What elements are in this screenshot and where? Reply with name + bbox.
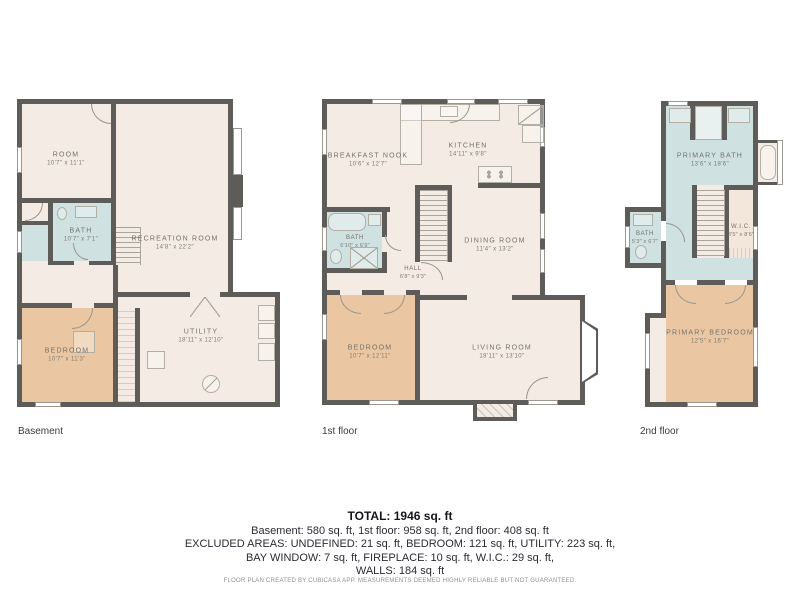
door-leaf [205, 297, 220, 317]
room-name: BEDROOM [45, 348, 90, 355]
stairwell-icon [118, 311, 135, 402]
furniture-icon [147, 351, 165, 369]
stairs-icon [420, 190, 448, 262]
first-floor-caption: 1st floor [322, 426, 358, 437]
window [35, 402, 61, 407]
basement-shower-closet [22, 225, 48, 261]
second-floor-plan: PRIMARY BATH 13'6" x 18'6" BATH 5'3" x 6… [625, 101, 785, 407]
wall [420, 295, 467, 300]
chimney [228, 175, 243, 207]
total-area: TOTAL: 1946 sq. ft [0, 509, 800, 523]
room-name: BATH [632, 231, 658, 237]
wall [722, 101, 727, 140]
double-door [190, 297, 220, 317]
room-label-primary-bath: PRIMARY BATH 13'6" x 18'6" [677, 153, 743, 168]
room-dims: 5'3" x 6'7" [632, 239, 658, 245]
window [17, 147, 22, 173]
floor-areas: Basement: 580 sq. ft, 1st floor: 958 sq.… [0, 525, 800, 538]
window [668, 101, 688, 106]
room-label-basement-bath: BATH 10'7" x 7'1" [64, 228, 98, 243]
wall [661, 241, 666, 263]
wall [540, 295, 585, 300]
room-label-wic: W.I.C. 3'5" x 8'6" [728, 224, 754, 238]
water-heater-icon [202, 375, 220, 393]
stove-burners [481, 169, 509, 180]
room-name: DINING ROOM [464, 238, 525, 245]
appliance-icon [258, 323, 275, 339]
shower-icon [350, 247, 378, 269]
disclaimer-text: FLOOR PLAN CREATED BY CUBICASA APP. MEAS… [0, 578, 800, 584]
window [369, 400, 399, 405]
window [17, 339, 22, 365]
toilet-icon [57, 207, 67, 220]
bathtub-icon [760, 145, 776, 180]
room-dims: 12'5" x 16'7" [666, 339, 754, 345]
door-leaf [190, 297, 205, 317]
appliance-icon [258, 343, 275, 361]
window [645, 333, 650, 369]
wall [362, 290, 384, 295]
window [687, 402, 717, 407]
room-label-living-room: LIVING ROOM 18'11" x 13'10" [472, 345, 532, 360]
window-bump [233, 207, 242, 240]
room-label-primary-bedroom: PRIMARY BEDROOM 12'5" x 16'7" [666, 330, 754, 345]
wall [661, 212, 666, 221]
room-dims: 10'7" x 11'3" [45, 357, 90, 363]
toilet-icon [635, 245, 647, 259]
appliance-icon [258, 305, 275, 321]
walls-area: WALLS: 184 sq. ft [0, 565, 800, 578]
room-label-basement-bedroom: BEDROOM 10'7" x 11'3" [45, 348, 90, 363]
room-name: RECREATION ROOM [131, 236, 218, 243]
room-label-kitchen: KITCHEN 14'11" x 9'8" [448, 143, 487, 158]
wall [415, 290, 420, 405]
wall [327, 290, 340, 295]
wall [382, 212, 387, 237]
wall [220, 292, 280, 297]
excluded-areas-1: EXCLUDED AREAS: UNDEFINED: 21 sq. ft, BE… [0, 538, 800, 551]
room-name: BATH [64, 228, 98, 235]
wall [666, 280, 675, 285]
wall [478, 183, 545, 188]
wall [94, 303, 113, 308]
wall [625, 207, 666, 212]
room-label-first-bedroom: BEDROOM 10'7" x 12'11" [348, 345, 393, 360]
window [322, 227, 327, 251]
room-name: W.I.C. [728, 224, 754, 230]
room-dims: 18'11" x 12'10" [178, 338, 223, 344]
room-label-dining-room: DINING ROOM 11'4" x 13'2" [464, 238, 525, 253]
window [498, 99, 528, 104]
floorplan-page: ROOM 10'7" x 11'1" RECREATION ROOM 14'8"… [0, 0, 800, 600]
room-name: KITCHEN [448, 143, 487, 150]
window [322, 314, 327, 340]
basement-caption: Basement [18, 426, 63, 437]
wall [113, 292, 190, 297]
bedroom-nook-area [650, 318, 666, 402]
shower-icon [695, 106, 722, 140]
wall [661, 263, 666, 318]
stairs-icon [697, 190, 725, 256]
window [322, 129, 327, 155]
room-dims: 10'6" x 12'7" [328, 162, 408, 168]
wall [22, 303, 72, 308]
room-label-recreation-room: RECREATION ROOM 14'8" x 22'2" [131, 236, 218, 251]
excluded-areas-2: BAY WINDOW: 7 sq. ft, FIREPLACE: 10 sq. … [0, 552, 800, 565]
room-name: BEDROOM [348, 345, 393, 352]
stove-icon [478, 166, 512, 183]
window [540, 249, 545, 273]
room-dims: 11'4" x 13'2" [464, 247, 525, 253]
wall [275, 292, 280, 407]
room-label-basement-room: ROOM 10'7" x 11'1" [47, 152, 85, 167]
wall [625, 263, 666, 268]
bay-window-glass [582, 321, 596, 382]
room-name: PRIMARY BEDROOM [666, 330, 754, 337]
window-bump [233, 128, 242, 175]
closet-rail-icon [729, 248, 753, 258]
room-dims: 13'6" x 18'6" [677, 162, 743, 168]
second-floor-caption: 2nd floor [640, 426, 679, 437]
corner-counter [518, 105, 544, 125]
wall [17, 99, 233, 104]
kitchen-counter [522, 125, 544, 143]
bathtub-icon [328, 213, 366, 231]
room-dims: 14'11" x 9'8" [448, 152, 487, 158]
wall [724, 185, 753, 190]
window [528, 400, 558, 405]
sink-icon [669, 108, 691, 123]
room-dims: 10'7" x 7'1" [64, 237, 98, 243]
wall [89, 261, 116, 265]
wall [697, 280, 725, 285]
room-name: ROOM [47, 152, 85, 159]
room-label-breakfast-nook: BREAKFAST NOOK 10'6" x 12'7" [328, 153, 408, 168]
room-name: BATH [340, 235, 370, 241]
room-label-first-bath: BATH 6'10" x 6'9" [340, 235, 370, 249]
wall [747, 280, 753, 285]
room-dims: 10'7" x 12'11" [348, 354, 393, 360]
room-name: BREAKFAST NOOK [328, 153, 408, 160]
room-name: PRIMARY BATH [677, 153, 743, 160]
toilet-icon [330, 249, 342, 264]
window [777, 140, 783, 185]
room-name: UTILITY [178, 329, 223, 336]
wall [135, 308, 140, 402]
sink-icon [368, 214, 381, 226]
window [17, 231, 22, 253]
window [625, 226, 630, 248]
first-floor-plan: BREAKFAST NOOK 10'6" x 12'7" KITCHEN 14'… [322, 99, 598, 421]
room-dims: 6'10" x 6'9" [340, 243, 370, 249]
room-label-hall: HALL 6'8" x 9'3" [400, 266, 426, 280]
room-dims: 18'11" x 13'10" [472, 354, 532, 360]
room-dims: 6'8" x 9'3" [400, 274, 426, 280]
room-dims: 3'5" x 8'6" [728, 232, 754, 238]
sink-icon [75, 206, 97, 218]
basement-plan: ROOM 10'7" x 11'1" RECREATION ROOM 14'8"… [17, 99, 280, 407]
room-name: HALL [400, 266, 426, 272]
room-name: LIVING ROOM [472, 345, 532, 352]
room-dims: 10'7" x 11'1" [47, 161, 85, 167]
wall [111, 104, 116, 203]
room-dims: 14'8" x 22'2" [131, 245, 218, 251]
area-summary: TOTAL: 1946 sq. ft Basement: 580 sq. ft,… [0, 509, 800, 579]
room-label-second-bath: BATH 5'3" x 6'7" [632, 231, 658, 245]
wall [661, 101, 666, 212]
wall [48, 225, 53, 265]
sink-icon [728, 108, 750, 123]
fireplace [473, 400, 517, 421]
room-label-utility: UTILITY 18'11" x 12'10" [178, 329, 223, 344]
wall [512, 295, 540, 300]
window [372, 99, 402, 104]
sink-icon [633, 214, 653, 226]
window [540, 213, 545, 239]
wall [327, 207, 390, 212]
